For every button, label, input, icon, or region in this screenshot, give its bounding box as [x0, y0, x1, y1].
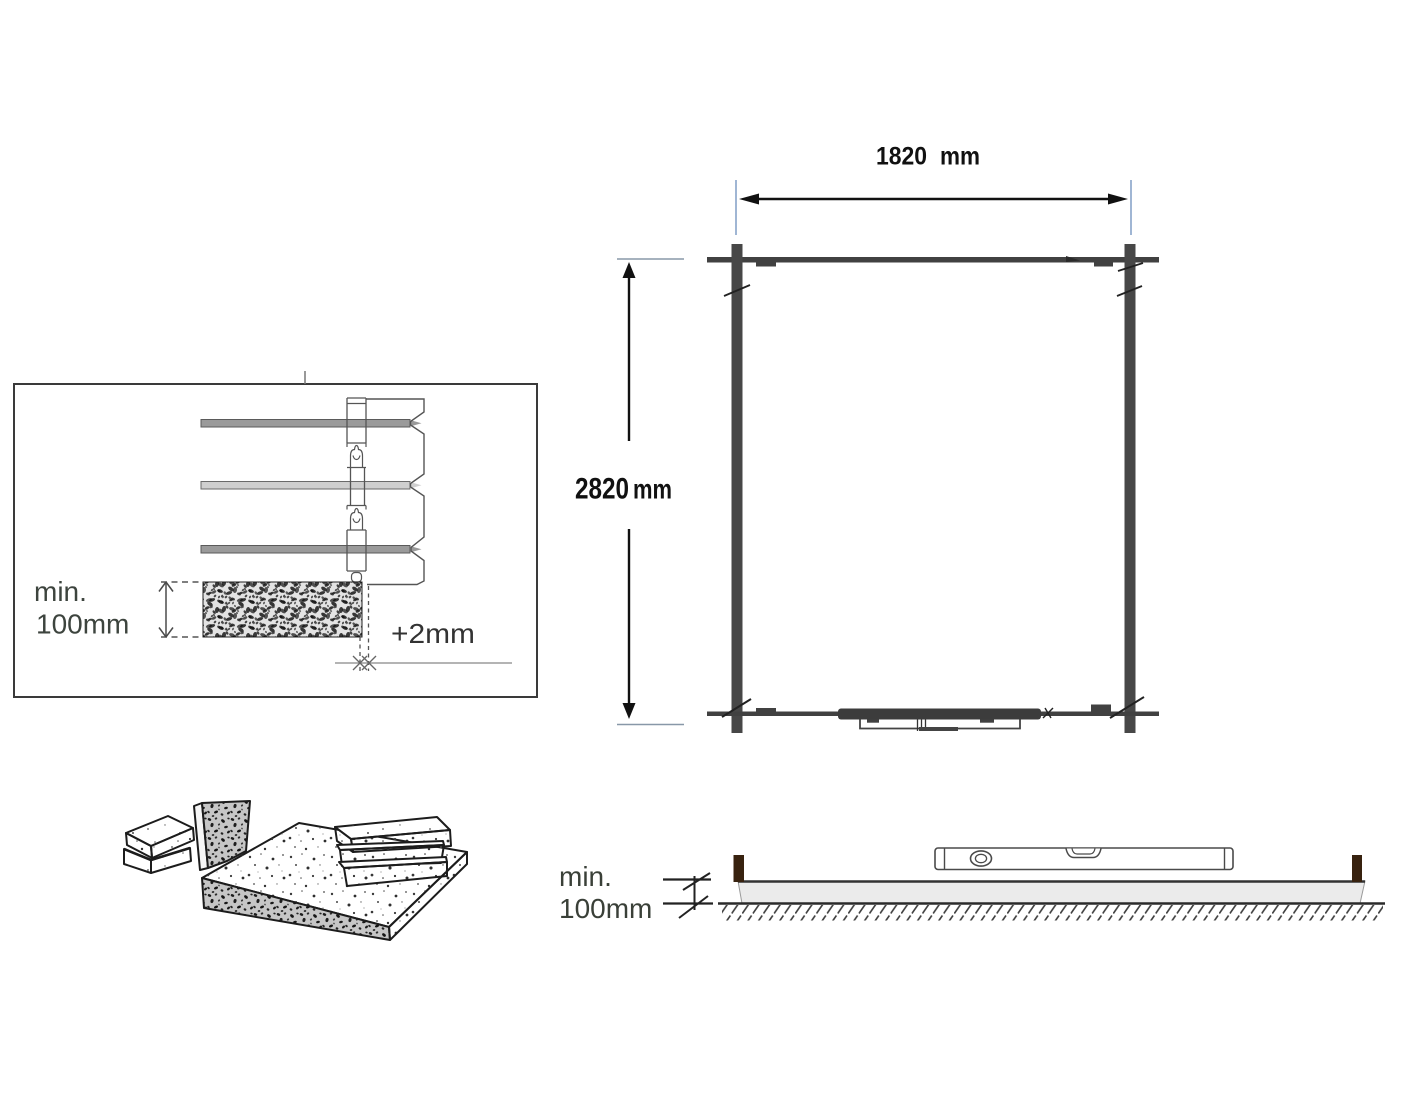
svg-text:mm: mm: [633, 474, 672, 505]
svg-text:min.: min.: [559, 861, 612, 892]
svg-text:mm: mm: [940, 143, 980, 171]
svg-text:100mm: 100mm: [559, 893, 652, 924]
svg-text:100mm: 100mm: [36, 609, 129, 640]
svg-text:+2mm: +2mm: [391, 618, 475, 649]
svg-text:min.: min.: [34, 576, 87, 607]
svg-text:1820: 1820: [876, 143, 927, 171]
svg-text:2820: 2820: [575, 473, 629, 506]
